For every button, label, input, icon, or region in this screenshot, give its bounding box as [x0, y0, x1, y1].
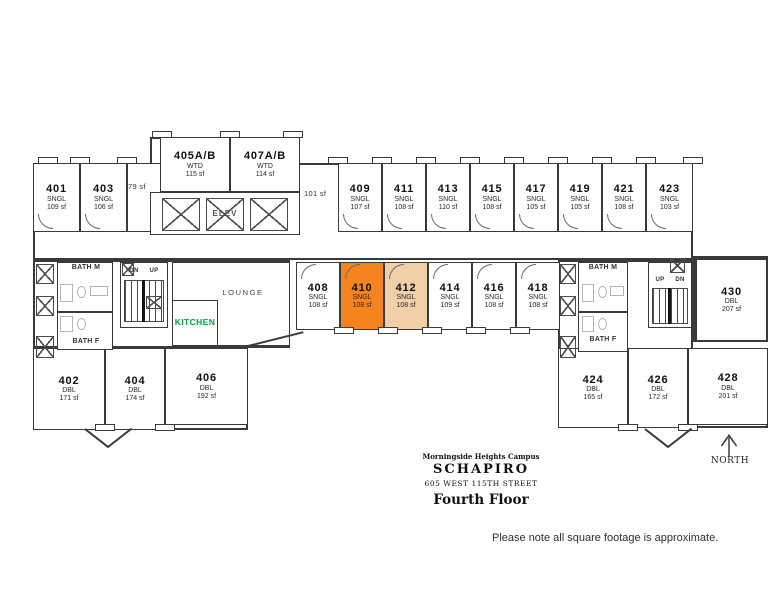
room-area: 109 sf: [440, 302, 459, 310]
bath-f-left-label: BATH F: [62, 338, 110, 345]
room-area: 105 sf: [526, 204, 545, 212]
room-area: 110 sf: [439, 204, 458, 212]
window-tick: [548, 157, 568, 164]
footnote-text: Please note all square footage is approx…: [492, 532, 718, 544]
room-area: 108 sf: [352, 302, 371, 310]
shaft-icon: [560, 264, 576, 284]
floor-plan-canvas: 401 SNGL 109 sf 403 SNGL 106 sf 405A/B W…: [0, 0, 776, 600]
room-number: 423: [659, 183, 680, 195]
room-number: 405A/B: [174, 150, 216, 162]
room-404[interactable]: 404 DBL 174 sf: [105, 348, 165, 430]
campus-label: Morningside Heights Campus: [386, 452, 576, 461]
bath-fixture: [582, 316, 594, 332]
room-area: 103 sf: [660, 204, 679, 212]
room-area: 108 sf: [396, 302, 415, 310]
window-tick: [378, 327, 398, 334]
sf-79-label: 79 sf: [128, 182, 146, 191]
room-number: 414: [440, 282, 461, 294]
kitchen-label: KITCHEN: [170, 317, 220, 327]
room-type: SNGL: [396, 294, 415, 302]
room-type: SNGL: [660, 196, 679, 204]
room-number: 403: [93, 183, 114, 195]
room-type: SNGL: [526, 196, 545, 204]
address-label: 605 WEST 115TH STREET: [386, 479, 576, 488]
room-402[interactable]: 402 DBL 171 sf: [33, 348, 105, 430]
toilet-fixture: [77, 286, 86, 298]
room-type: SNGL: [350, 196, 369, 204]
room-area: 171 sf: [59, 395, 78, 403]
room-type: SNGL: [438, 196, 457, 204]
title-block: Morningside Heights Campus SCHAPIRO 605 …: [386, 452, 576, 508]
building-name: SCHAPIRO: [386, 462, 576, 477]
room-number: 407A/B: [244, 150, 286, 162]
room-area: 165 sf: [583, 394, 602, 402]
window-tick: [117, 157, 137, 164]
room-type: SNGL: [482, 196, 501, 204]
room-number: 402: [59, 375, 80, 387]
room-428[interactable]: 428 DBL 201 sf: [688, 348, 768, 425]
stair-dn-label: DN: [126, 268, 142, 274]
window-tick: [510, 327, 530, 334]
room-number: 417: [526, 183, 547, 195]
room-type: SNGL: [614, 196, 633, 204]
bath-m-right-label: BATH M: [580, 264, 626, 271]
room-type: SNGL: [47, 196, 66, 204]
room-426[interactable]: 426 DBL 172 sf: [628, 348, 688, 428]
window-tick: [70, 157, 90, 164]
sf-101-label: 101 sf: [304, 189, 326, 198]
room-area: 115 sf: [186, 171, 205, 179]
room-type: SNGL: [308, 294, 327, 302]
room-number: 418: [528, 282, 549, 294]
stair-rail: [668, 288, 671, 324]
elevator-label: ELEV: [208, 209, 242, 218]
window-tick: [683, 157, 703, 164]
bath-fixture: [60, 316, 73, 332]
sink-fixture: [90, 286, 108, 296]
room-number: 415: [482, 183, 503, 195]
room-area: 114 sf: [256, 171, 275, 179]
room-type: DBL: [200, 385, 214, 393]
room-type: WTD: [187, 163, 203, 171]
toilet-fixture: [77, 318, 86, 330]
room-type: DBL: [725, 298, 739, 306]
room-number: 416: [484, 282, 505, 294]
window-tick: [328, 157, 348, 164]
room-area: 201 sf: [718, 393, 737, 401]
bath-f-right-label: BATH F: [580, 336, 626, 343]
room-area: 109 sf: [47, 204, 66, 212]
room-area: 106 sf: [94, 204, 113, 212]
toilet-fixture: [598, 286, 607, 298]
room-number: 424: [583, 374, 604, 386]
room-type: DBL: [62, 387, 76, 395]
room-area: 107 sf: [350, 204, 369, 212]
shaft-icon: [36, 296, 54, 316]
shaft-icon: [146, 296, 162, 309]
bath-fixture: [60, 284, 73, 302]
room-area: 108 sf: [394, 204, 413, 212]
window-tick: [220, 131, 240, 138]
room-424[interactable]: 424 DBL 165 sf: [558, 348, 628, 428]
window-tick: [95, 424, 115, 431]
room-area: 105 sf: [570, 204, 589, 212]
room-area: 108 sf: [614, 204, 633, 212]
room-430[interactable]: 430 DBL 207 sf: [695, 258, 768, 342]
shaft-icon: [36, 264, 54, 284]
window-tick: [334, 327, 354, 334]
room-407ab[interactable]: 407A/B WTD 114 sf: [230, 137, 300, 192]
room-number: 412: [396, 282, 417, 294]
window-tick: [636, 157, 656, 164]
room-area: 108 sf: [484, 302, 503, 310]
room-number: 426: [648, 374, 669, 386]
room-number: 406: [196, 372, 217, 384]
stair-rail: [142, 280, 145, 322]
room-type: SNGL: [484, 294, 503, 302]
room-type: DBL: [721, 385, 735, 393]
floor-label: Fourth Floor: [386, 492, 576, 508]
room-406[interactable]: 406 DBL 192 sf: [165, 348, 248, 425]
room-area: 108 sf: [308, 302, 327, 310]
room-area: 108 sf: [482, 204, 501, 212]
room-type: DBL: [586, 386, 600, 394]
wall-segment: [84, 428, 109, 448]
room-number: 409: [350, 183, 371, 195]
window-tick: [283, 131, 303, 138]
window-tick: [460, 157, 480, 164]
north-arrow-icon: [716, 432, 742, 458]
elevator-shaft-icon: [162, 198, 200, 231]
stair-up-label: UP: [146, 268, 162, 274]
room-area: 108 sf: [528, 302, 547, 310]
room-number: 421: [614, 183, 635, 195]
room-area: 172 sf: [648, 394, 667, 402]
room-type: SNGL: [352, 294, 371, 302]
room-type: SNGL: [440, 294, 459, 302]
room-type: DBL: [651, 386, 665, 394]
room-number: 430: [721, 286, 742, 298]
stair-dn-label: DN: [672, 277, 688, 283]
window-tick: [504, 157, 524, 164]
room-type: SNGL: [94, 196, 113, 204]
room-type: SNGL: [528, 294, 547, 302]
room-405ab[interactable]: 405A/B WTD 115 sf: [160, 137, 230, 192]
shaft-icon: [36, 336, 54, 358]
room-number: 408: [308, 282, 329, 294]
sink-fixture: [610, 286, 624, 296]
window-tick: [416, 157, 436, 164]
room-type: SNGL: [394, 196, 413, 204]
room-number: 419: [570, 183, 591, 195]
room-number: 401: [46, 183, 67, 195]
wall-segment: [644, 428, 669, 448]
window-tick: [592, 157, 612, 164]
bath-fixture: [582, 284, 594, 302]
window-tick: [422, 327, 442, 334]
room-type: SNGL: [570, 196, 589, 204]
window-tick: [618, 424, 638, 431]
toilet-fixture: [598, 318, 607, 330]
north-label: NORTH: [710, 456, 750, 466]
room-number: 411: [394, 183, 414, 195]
window-tick: [466, 327, 486, 334]
window-tick: [38, 157, 58, 164]
room-number: 428: [718, 372, 739, 384]
room-type: DBL: [128, 387, 142, 395]
room-number: 410: [352, 282, 373, 294]
room-type: WTD: [257, 163, 273, 171]
room-area: 207 sf: [722, 306, 741, 314]
shaft-icon: [560, 336, 576, 358]
room-number: 404: [125, 375, 146, 387]
shaft-icon: [670, 258, 685, 273]
window-tick: [155, 424, 175, 431]
room-area: 192 sf: [197, 393, 216, 401]
room-area: 174 sf: [125, 395, 144, 403]
window-tick: [152, 131, 172, 138]
room-number: 413: [438, 183, 459, 195]
lounge-label: LOUNGE: [203, 288, 283, 297]
window-tick: [372, 157, 392, 164]
shaft-icon: [560, 296, 576, 316]
bath-m-left-label: BATH M: [62, 264, 110, 271]
stair-up-label: UP: [652, 277, 668, 283]
elevator-shaft-icon: [250, 198, 288, 231]
